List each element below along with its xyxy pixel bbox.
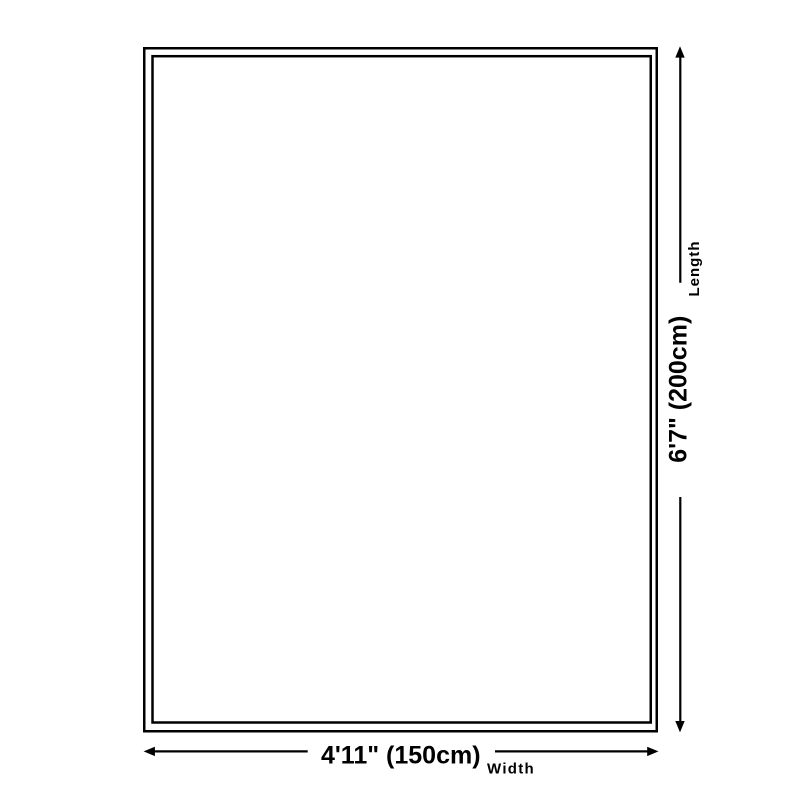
svg-text:Length: Length: [686, 241, 703, 297]
svg-text:Width: Width: [487, 761, 535, 778]
svg-text:6'7" (200cm): 6'7" (200cm): [665, 316, 693, 463]
svg-text:4'11" (150cm): 4'11" (150cm): [321, 742, 481, 770]
